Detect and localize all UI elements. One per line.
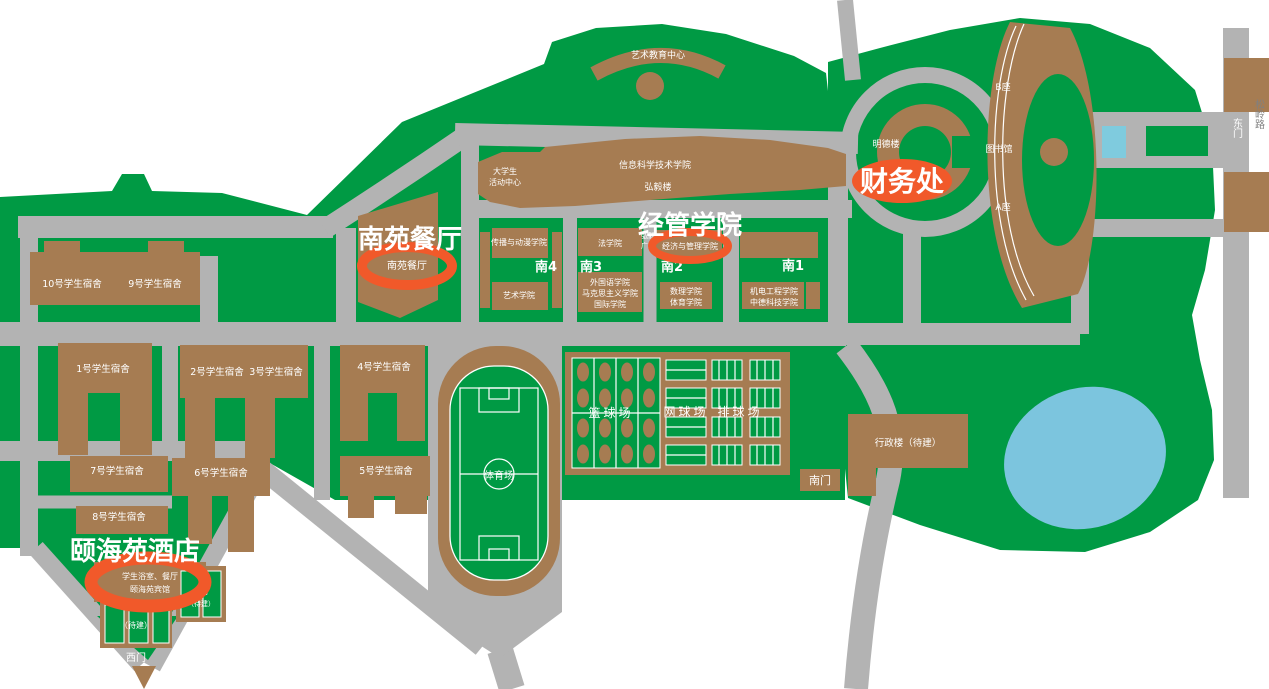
- info-tech-label: 信息科学技术学院: [619, 159, 691, 171]
- dorm1-label: 1号学生宿舍: [76, 363, 130, 375]
- campus-map: 体育场: [0, 0, 1269, 689]
- business-building-label: 经济与管理学院: [662, 241, 718, 251]
- east-gate-label: 东门: [1231, 117, 1243, 139]
- library-center-circle: [1040, 138, 1068, 166]
- library-label: 图书馆: [985, 143, 1012, 155]
- mech-eng-label: 机电工程学院: [750, 286, 798, 296]
- intl-college-label: 国际学院: [594, 299, 626, 309]
- dorm9-label: 9号学生宿舍: [128, 278, 182, 290]
- art-college-label: 艺术学院: [503, 290, 535, 300]
- finance-title: 财务处: [860, 165, 944, 198]
- student-center-label1: 大学生: [493, 166, 517, 176]
- dorm-8: 8号学生宿舍: [76, 506, 168, 534]
- foreign-lang-label: 外国语学院: [590, 277, 630, 287]
- courts-block: 篮球场 网球场 排球场: [565, 352, 790, 475]
- south3-label: 南3: [580, 259, 602, 275]
- south-gate-label: 南门: [809, 473, 831, 487]
- dorm3-label: 3号学生宿舍: [249, 366, 303, 378]
- arts-center-dome: [636, 72, 664, 100]
- campus-map-svg: 体育场: [0, 0, 1269, 689]
- pe-college-label: 体育学院: [670, 297, 702, 307]
- volleyball-label: 排球场: [717, 405, 762, 419]
- admin-label: 行政楼（待建）: [875, 437, 942, 449]
- communication-college-label: 传播与动漫学院: [491, 237, 547, 247]
- tbd-court-a-label: （待建）: [120, 620, 152, 630]
- hotel-line2: 颐海苑宾馆: [130, 584, 170, 594]
- dorm4-label: 4号学生宿舍: [357, 361, 411, 373]
- stadium: 体育场: [428, 332, 562, 658]
- student-center-label2: 活动中心: [489, 177, 521, 187]
- dorm10-label: 10号学生宿舍: [42, 278, 102, 290]
- law-school-label: 法学院: [598, 238, 622, 248]
- math-science-label: 数理学院: [670, 286, 702, 296]
- sino-german-label: 中德科技学院: [750, 297, 798, 307]
- dorm5-label: 5号学生宿舍: [359, 465, 413, 477]
- block-b-label: B座: [995, 81, 1010, 93]
- mingde-opening: [952, 136, 980, 168]
- road-ring-north: [845, 0, 853, 80]
- hotel-title: 颐海苑酒店: [70, 537, 200, 567]
- east-building-south: [1224, 172, 1269, 232]
- arts-center-label: 艺术教育中心: [631, 49, 685, 61]
- south4-label: 南4: [535, 259, 557, 275]
- hotel-line1: 学生浴室、餐厅: [122, 571, 178, 581]
- dorm-7: 7号学生宿舍: [70, 456, 168, 492]
- marxism-label: 马克思主义学院: [582, 288, 638, 298]
- pool-cyan-square: [1102, 126, 1126, 158]
- south1-label: 南1: [782, 258, 804, 274]
- dorm6-label: 6号学生宿舍: [194, 467, 248, 479]
- canteen-title: 南苑餐厅: [358, 225, 462, 255]
- songling-road-label: 松岭路: [1253, 98, 1265, 130]
- canteen-building-label: 南苑餐厅: [387, 259, 427, 272]
- west-gate-label: 西门: [126, 651, 146, 664]
- mingde-label: 明德楼: [872, 138, 899, 150]
- business-title: 经管学院: [638, 210, 742, 241]
- dorm7-label: 7号学生宿舍: [90, 465, 144, 477]
- east-gate-green-island: [1146, 126, 1208, 156]
- dorm8-label: 8号学生宿舍: [92, 511, 146, 523]
- hongyi-building-label: 弘毅楼: [644, 181, 671, 193]
- dorm2-label: 2号学生宿舍: [190, 366, 244, 378]
- stadium-label: 体育场: [484, 469, 514, 482]
- basketball-label: 篮球场: [588, 405, 633, 420]
- block-a-label: A座: [995, 201, 1010, 213]
- tennis-label: 网球场: [663, 405, 708, 419]
